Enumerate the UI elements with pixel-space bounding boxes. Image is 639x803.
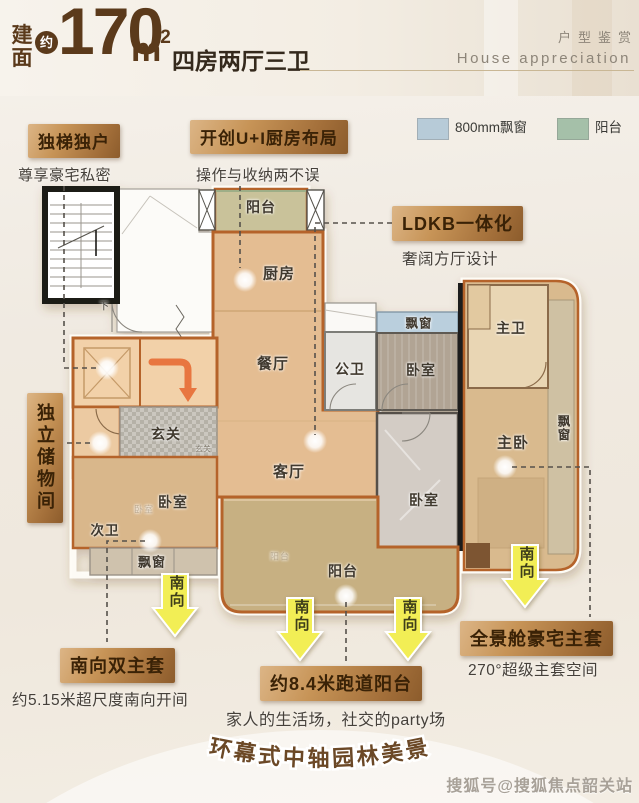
label-stairs-down: 下 [99, 298, 109, 313]
label-living: 客厅 [273, 461, 305, 482]
label-master-bedroom: 主卧 [497, 432, 529, 453]
label-bedroom-middle: 卧室 [406, 360, 436, 380]
callout-storage-badge: 独立储物间 [27, 393, 63, 523]
label-balcony-top: 阳台 [246, 197, 276, 217]
label-bay-window-east: 飘窗 [554, 415, 573, 442]
label-dining: 餐厅 [257, 353, 289, 374]
south-arrow-4-label: 南向 [516, 546, 537, 580]
label-bay-window-southwest: 飘窗 [138, 552, 166, 571]
callout-south-suites-badge: 南向双主套 [60, 648, 175, 683]
label-balcony-bottom: 阳台 [328, 561, 358, 581]
label-foyer: 玄关 [151, 424, 181, 444]
label-bedroom-southeast: 卧室 [409, 490, 439, 510]
callout-kitchen-subtitle: 操作与收纳两不误 [196, 164, 320, 185]
callout-panorama-badge: 全景舱豪宅主套 [460, 621, 613, 656]
south-arrow-1-label: 南向 [166, 575, 187, 609]
closet [325, 303, 376, 332]
south-arrow-3-label: 南向 [399, 599, 420, 633]
floor-plan [45, 189, 578, 612]
label-bedroom-watermark: 卧室 [134, 503, 154, 516]
callout-ldkb-subtitle: 奢阔方厅设计 [402, 247, 498, 269]
callout-south-suites-subtitle: 约5.15米超尺度南向开间 [12, 688, 188, 710]
label-balcony-watermark: 阳台 [270, 550, 290, 563]
label-foyer-small: 玄关 [195, 444, 211, 455]
callout-private-elevator-subtitle: 尊享豪宅私密 [18, 164, 111, 185]
label-master-bath: 主卫 [496, 318, 526, 338]
callout-runway-balcony-badge: 约8.4米跑道阳台 [260, 666, 422, 701]
label-kitchen: 厨房 [263, 263, 295, 284]
label-bedroom-southwest: 卧室 [158, 492, 188, 512]
bedroom-southeast [377, 413, 458, 547]
label-second-bath: 次卫 [91, 519, 120, 539]
master-bath-closet [468, 285, 490, 329]
master-bed-rug [478, 478, 544, 548]
master-wardrobe [466, 543, 490, 568]
label-bay-window-north: 飘窗 [405, 313, 432, 332]
floorplan-infographic: 建面 约 170 m2 四房两厅三卫 户型鉴赏 House appreciati… [0, 0, 639, 803]
callout-runway-balcony-subtitle: 家人的生活场，社交的party场 [226, 706, 446, 730]
callout-ldkb-badge: LDKB一体化 [392, 206, 523, 241]
south-arrow-2-label: 南向 [291, 599, 312, 633]
callout-panorama-subtitle: 270°超级主套空间 [468, 658, 598, 680]
watermark: 搜狐号@搜狐焦点韶关站 [446, 772, 633, 796]
callout-kitchen-badge: 开创U+I厨房布局 [190, 120, 348, 154]
label-powder-bath: 公卫 [335, 359, 365, 379]
callout-private-elevator-badge: 独梯独户 [28, 124, 120, 158]
